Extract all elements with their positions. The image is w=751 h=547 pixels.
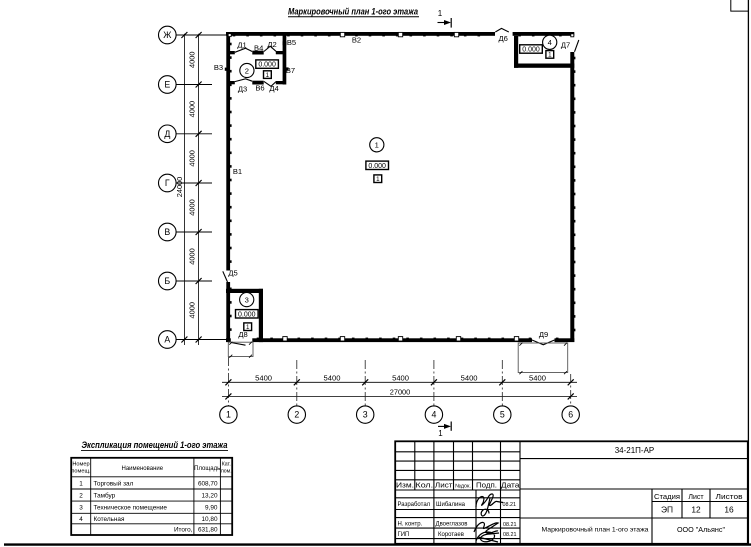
svg-text:ЭП: ЭП (661, 504, 673, 514)
svg-text:4: 4 (431, 410, 436, 420)
svg-text:Коротаев: Коротаев (438, 532, 464, 538)
svg-text:Торговый зал: Торговый зал (94, 479, 134, 487)
svg-text:Экспликация помещений 1-ого эт: Экспликация помещений 1-ого этажа (82, 440, 228, 450)
svg-text:08.21: 08.21 (503, 522, 517, 528)
svg-text:5: 5 (500, 410, 505, 420)
svg-text:5400: 5400 (461, 373, 478, 382)
svg-text:Изм.: Изм. (396, 481, 414, 490)
svg-text:1: 1 (266, 72, 270, 79)
svg-text:4: 4 (548, 38, 552, 47)
svg-text:631,80: 631,80 (198, 527, 218, 534)
svg-text:Д9: Д9 (539, 330, 548, 339)
svg-text:В5: В5 (287, 38, 296, 47)
svg-text:2: 2 (245, 66, 249, 75)
svg-text:помещ.: помещ. (71, 469, 91, 475)
svg-text:1: 1 (438, 429, 443, 438)
svg-text:34-21П-АР: 34-21П-АР (615, 446, 655, 455)
svg-text:4000: 4000 (188, 52, 197, 68)
svg-text:В2: В2 (352, 36, 361, 45)
svg-text:4000: 4000 (188, 101, 197, 117)
svg-text:27000: 27000 (390, 387, 411, 396)
svg-text:16: 16 (724, 504, 734, 514)
svg-text:6: 6 (568, 410, 573, 420)
svg-text:4000: 4000 (188, 302, 197, 318)
svg-text:Кол.: Кол. (416, 481, 434, 490)
svg-text:Д1: Д1 (237, 41, 246, 50)
svg-text:4: 4 (79, 516, 83, 523)
svg-text:5400: 5400 (392, 373, 409, 382)
svg-text:Е: Е (164, 80, 170, 90)
svg-text:Д8: Д8 (238, 330, 247, 339)
svg-text:Двоеглазов: Двоеглазов (436, 522, 468, 528)
svg-text:Д6: Д6 (499, 34, 508, 43)
svg-text:1: 1 (376, 176, 380, 183)
svg-text:№док.: №док. (455, 484, 471, 490)
svg-text:Площадь: Площадь (194, 466, 220, 472)
svg-text:Лист: Лист (435, 481, 453, 490)
svg-text:1: 1 (438, 9, 443, 18)
svg-text:В: В (164, 227, 170, 237)
svg-text:08.21: 08.21 (503, 502, 517, 508)
svg-text:Д2: Д2 (267, 40, 276, 49)
svg-text:Лист: Лист (688, 494, 704, 501)
svg-text:Н. контр.: Н. контр. (398, 522, 423, 528)
svg-text:Дата: Дата (501, 481, 520, 490)
svg-text:12: 12 (691, 504, 701, 514)
svg-text:Д4: Д4 (269, 84, 278, 93)
svg-text:ГИП: ГИП (398, 532, 410, 538)
svg-text:Наименование: Наименование (122, 466, 164, 472)
svg-text:4000: 4000 (188, 248, 197, 264)
svg-text:9,90: 9,90 (205, 505, 218, 512)
svg-text:Стадия: Стадия (654, 494, 680, 501)
svg-text:1: 1 (548, 52, 552, 59)
svg-text:В1: В1 (233, 167, 242, 176)
svg-text:Итого,: Итого, (174, 527, 193, 534)
svg-text:4000: 4000 (188, 199, 197, 215)
svg-text:2: 2 (79, 492, 83, 499)
svg-text:4000: 4000 (188, 150, 197, 166)
svg-text:Котельная: Котельная (94, 516, 125, 523)
svg-text:5400: 5400 (255, 373, 272, 382)
svg-text:0.000: 0.000 (522, 47, 540, 54)
svg-text:5400: 5400 (529, 373, 546, 382)
svg-text:Подп.: Подп. (476, 481, 497, 490)
svg-text:В3: В3 (214, 63, 223, 72)
svg-text:3: 3 (79, 505, 83, 512)
svg-text:0.000: 0.000 (368, 163, 386, 170)
svg-text:2: 2 (294, 410, 299, 420)
svg-text:Б: Б (164, 276, 170, 286)
svg-text:Маркировочный план 1-ого этажа: Маркировочный план 1-ого этажа (288, 7, 419, 18)
svg-text:А: А (164, 335, 170, 345)
svg-text:3: 3 (245, 295, 249, 304)
svg-text:Кат.: Кат. (222, 462, 231, 468)
svg-text:Г: Г (165, 178, 170, 188)
svg-text:0.000: 0.000 (238, 311, 256, 318)
svg-text:10,80: 10,80 (202, 516, 218, 523)
svg-text:ООО "Альянс": ООО "Альянс" (677, 525, 726, 534)
svg-text:1: 1 (375, 141, 379, 150)
svg-text:Техническое помещение: Техническое помещение (94, 505, 168, 512)
svg-text:608,70: 608,70 (198, 480, 218, 487)
svg-text:Д3: Д3 (238, 85, 247, 94)
svg-text:13,20: 13,20 (202, 492, 218, 499)
svg-text:Шибалина: Шибалина (436, 502, 466, 508)
svg-text:Разработал: Разработал (398, 502, 431, 508)
svg-text:Д5: Д5 (228, 269, 237, 278)
svg-text:3: 3 (363, 410, 368, 420)
svg-text:0.000: 0.000 (258, 62, 276, 69)
svg-text:5400: 5400 (324, 373, 341, 382)
svg-text:24000: 24000 (175, 177, 184, 198)
svg-text:Листов: Листов (716, 494, 743, 501)
svg-text:Тамбур: Тамбур (94, 491, 116, 499)
svg-text:В7: В7 (286, 66, 295, 75)
svg-text:Номер: Номер (72, 462, 89, 468)
svg-text:В4: В4 (254, 44, 263, 53)
svg-text:пом.: пом. (221, 469, 232, 475)
svg-text:В6: В6 (255, 84, 264, 93)
svg-text:Д7: Д7 (561, 41, 570, 50)
svg-text:Маркировочный план 1-ого этажа: Маркировочный план 1-ого этажа (542, 526, 649, 534)
svg-text:Д: Д (164, 129, 170, 139)
svg-text:08.21: 08.21 (503, 532, 517, 538)
svg-text:1: 1 (79, 480, 83, 487)
svg-text:Ж: Ж (163, 30, 171, 40)
svg-text:1: 1 (226, 410, 231, 420)
